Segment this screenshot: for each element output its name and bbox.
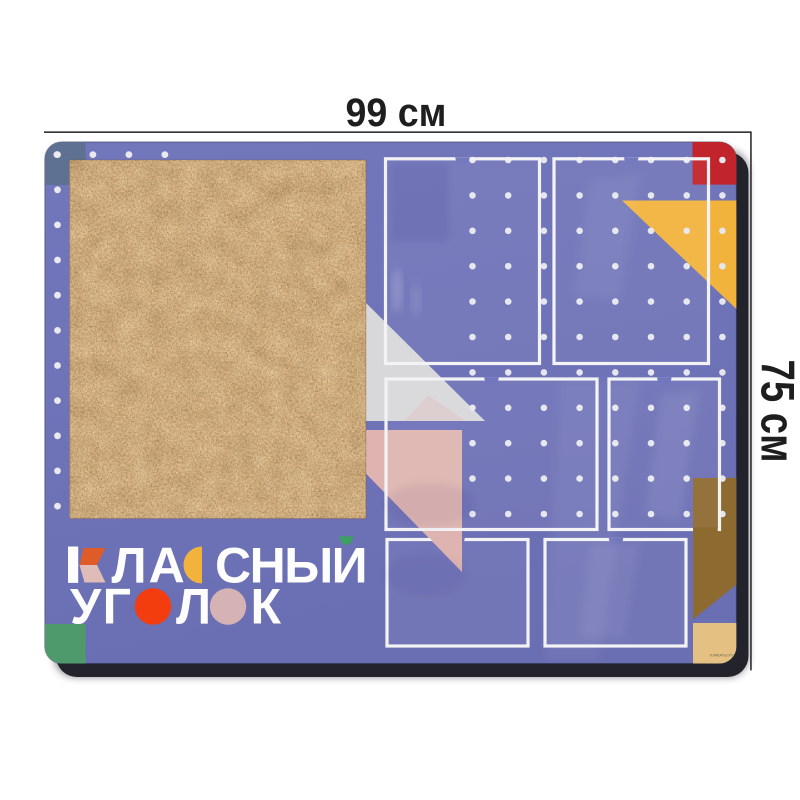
svg-text:К: К (251, 579, 282, 635)
svg-text:75 см: 75 см (752, 360, 800, 463)
svg-text:УГ: УГ (70, 579, 132, 635)
svg-text:ПЛАКАТЫ.РУ: ПЛАКАТЫ.РУ (710, 654, 734, 658)
svg-text:СНЫИ: СНЫИ (215, 538, 366, 594)
svg-text:99 см: 99 см (346, 91, 447, 135)
svg-text:Л: Л (176, 579, 211, 635)
